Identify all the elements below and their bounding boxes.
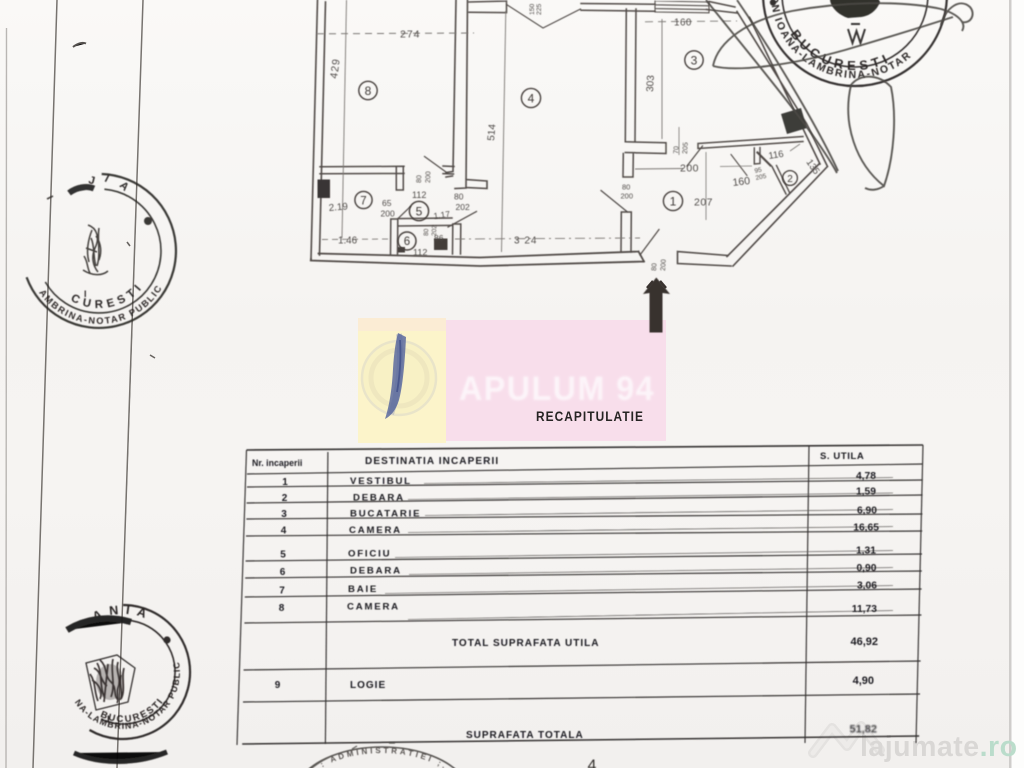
svg-text:11,73: 11,73 bbox=[852, 604, 877, 615]
svg-text:46,92: 46,92 bbox=[850, 636, 878, 648]
svg-text:2.19: 2.19 bbox=[328, 201, 348, 214]
svg-text:6: 6 bbox=[280, 567, 286, 578]
svg-text:3: 3 bbox=[691, 54, 698, 68]
svg-text:80: 80 bbox=[454, 192, 464, 202]
svg-text:5: 5 bbox=[280, 550, 286, 561]
svg-text:VESTIBUL: VESTIBUL bbox=[350, 476, 412, 487]
svg-text:3 24: 3 24 bbox=[514, 236, 537, 247]
svg-text:2: 2 bbox=[282, 493, 288, 504]
svg-text:OFICIU: OFICIU bbox=[348, 549, 391, 560]
svg-text:200: 200 bbox=[621, 192, 634, 201]
svg-text:80: 80 bbox=[651, 263, 659, 271]
svg-text:202: 202 bbox=[456, 202, 470, 212]
svg-text:S. UTILA: S. UTILA bbox=[820, 451, 864, 462]
svg-text:LOGIE: LOGIE bbox=[350, 680, 386, 691]
svg-text:6,90: 6,90 bbox=[857, 506, 877, 517]
svg-text:112: 112 bbox=[412, 190, 426, 200]
svg-text:TOTAL SUPRAFATA UTILA: TOTAL SUPRAFATA UTILA bbox=[452, 638, 599, 649]
svg-text:0,90: 0,90 bbox=[856, 563, 876, 574]
svg-text:65: 65 bbox=[382, 198, 392, 208]
svg-text:Nr. incaperii: Nr. incaperii bbox=[252, 458, 302, 468]
svg-text:7: 7 bbox=[360, 195, 366, 207]
svg-text:3: 3 bbox=[281, 509, 287, 520]
svg-text:DEBARA: DEBARA bbox=[350, 566, 402, 577]
svg-text:150: 150 bbox=[529, 3, 536, 15]
svg-text:4,78: 4,78 bbox=[856, 471, 876, 482]
svg-text:80: 80 bbox=[622, 183, 630, 192]
svg-text:4: 4 bbox=[588, 758, 597, 768]
svg-text:8: 8 bbox=[365, 84, 372, 98]
svg-text:225: 225 bbox=[536, 3, 543, 15]
svg-text:160: 160 bbox=[732, 175, 751, 189]
svg-text:86: 86 bbox=[434, 233, 444, 243]
svg-text:160: 160 bbox=[674, 18, 692, 29]
svg-text:DEBARA: DEBARA bbox=[353, 493, 405, 504]
svg-text:116: 116 bbox=[768, 149, 785, 162]
svg-text:6: 6 bbox=[404, 236, 410, 248]
svg-text:CAMERA: CAMERA bbox=[349, 525, 402, 536]
svg-text:SUPRAFATA TOTALA: SUPRAFATA TOTALA bbox=[466, 730, 584, 741]
svg-text:4,90: 4,90 bbox=[853, 675, 874, 687]
svg-text:8: 8 bbox=[279, 603, 285, 614]
svg-text:7: 7 bbox=[279, 586, 285, 597]
svg-text:1: 1 bbox=[670, 195, 677, 209]
svg-text:205: 205 bbox=[682, 142, 690, 154]
svg-text:1.46: 1.46 bbox=[338, 236, 358, 247]
svg-text:70: 70 bbox=[673, 146, 681, 154]
svg-text:4: 4 bbox=[528, 92, 535, 106]
svg-text:BUCATARIE: BUCATARIE bbox=[350, 509, 421, 520]
svg-text:207: 207 bbox=[694, 197, 713, 209]
svg-text:303: 303 bbox=[645, 74, 657, 92]
svg-text:I: I bbox=[84, 289, 87, 299]
svg-text:1,59: 1,59 bbox=[856, 487, 876, 498]
svg-text:3,06: 3,06 bbox=[857, 581, 877, 592]
svg-text:APULUM 94: APULUM 94 bbox=[459, 370, 655, 408]
svg-text:200: 200 bbox=[660, 259, 668, 271]
svg-text:80: 80 bbox=[416, 175, 423, 183]
svg-text:RECAPITULATIE: RECAPITULATIE bbox=[536, 409, 644, 424]
svg-text:16,65: 16,65 bbox=[853, 523, 879, 534]
svg-text:80: 80 bbox=[423, 228, 430, 236]
svg-text:1,31: 1,31 bbox=[856, 546, 876, 557]
svg-text:274: 274 bbox=[400, 29, 421, 41]
svg-text:1: 1 bbox=[282, 477, 288, 488]
svg-text:51,82: 51,82 bbox=[849, 724, 877, 736]
svg-text:200: 200 bbox=[381, 209, 395, 219]
svg-text:CAMERA: CAMERA bbox=[347, 602, 400, 613]
svg-text:9: 9 bbox=[275, 680, 281, 691]
svg-text:DESTINATIA INCAPERII: DESTINATIA INCAPERII bbox=[365, 456, 499, 467]
svg-text:5: 5 bbox=[416, 204, 423, 218]
svg-text:BAIE: BAIE bbox=[348, 584, 378, 595]
svg-text:112: 112 bbox=[413, 248, 427, 258]
svg-text:514: 514 bbox=[486, 123, 498, 141]
svg-text:2: 2 bbox=[787, 174, 793, 185]
svg-text:I: I bbox=[107, 714, 110, 725]
svg-text:200: 200 bbox=[680, 163, 699, 175]
svg-text:4: 4 bbox=[281, 526, 287, 537]
svg-text:200: 200 bbox=[425, 171, 432, 183]
